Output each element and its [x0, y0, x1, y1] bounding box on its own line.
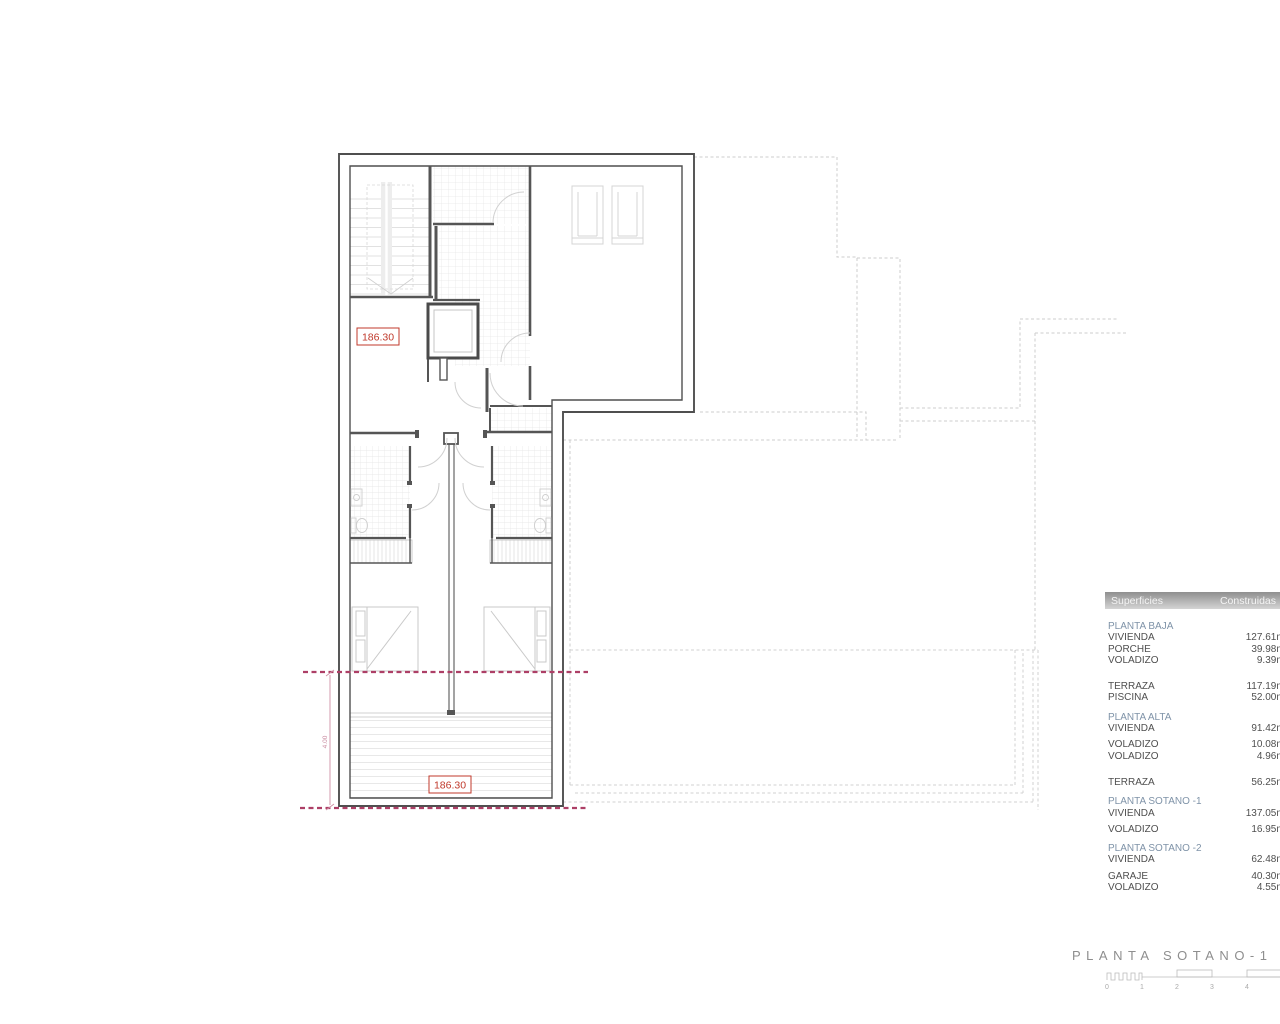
row-label: VIVIENDA	[1105, 632, 1155, 643]
row-label: VOLADIZO	[1105, 655, 1159, 666]
scale-tick-3: 3	[1210, 984, 1214, 991]
table-row	[1105, 666, 1280, 681]
table-row: VOLADIZO 9.39m²	[1105, 655, 1280, 666]
row-value: 16.95m²	[1251, 824, 1280, 835]
table-row: VOLADIZO 16.95m²	[1105, 824, 1280, 835]
row-value: 117.19m²	[1246, 681, 1280, 692]
table-row: VOLADIZO 10.08m²	[1105, 739, 1280, 750]
row-label: VIVIENDA	[1105, 723, 1155, 734]
row-label: VIVIENDA	[1105, 808, 1155, 819]
table-row: VOLADIZO 4.55m²	[1105, 882, 1280, 893]
row-label: VOLADIZO	[1105, 739, 1159, 750]
surfaces-table: Superficies Construidas PLANTA BAJA VIVI…	[1105, 592, 1280, 893]
row-value: 62.48m²	[1251, 854, 1280, 865]
scale-tick-1: 1	[1140, 984, 1144, 991]
row-label: TERRAZA	[1105, 777, 1155, 788]
table-row: PLANTA SOTANO -2	[1105, 843, 1280, 854]
elevator	[428, 304, 478, 380]
projection-outlines	[563, 157, 1128, 650]
loungers	[572, 186, 643, 244]
wardrobes	[350, 540, 552, 563]
dimension-label: 4.00	[322, 735, 329, 748]
row-value: 4.55m²	[1257, 882, 1280, 893]
row-value: 4.96m²	[1257, 751, 1280, 762]
surfaces-table-rows: PLANTA BAJA VIVIENDA 127.61m² PORCHE 39.…	[1105, 609, 1280, 893]
row-label: TERRAZA	[1105, 681, 1155, 692]
table-row: VIVIENDA 91.42m²	[1105, 723, 1280, 734]
row-value: 56.25m²	[1251, 777, 1280, 788]
floor-plan-drawing: 4.00 186.30 186.30 0 1 2 3 4 5	[0, 0, 1280, 1024]
row-label	[1105, 666, 1108, 681]
table-row: TERRAZA 56.25m²	[1105, 777, 1280, 788]
table-row: VOLADIZO 4.96m²	[1105, 751, 1280, 762]
row-label: PLANTA SOTANO -1	[1105, 796, 1202, 807]
scale-bar: 0 1 2 3 4 5	[1105, 970, 1280, 991]
row-value: 137.05m²	[1246, 808, 1280, 819]
row-value: 40.30m²	[1251, 871, 1280, 882]
area-label-top-text: 186.30	[362, 332, 394, 344]
area-label-bottom: 186.30	[429, 776, 471, 793]
table-row: TERRAZA 117.19m²	[1105, 681, 1280, 692]
table-row: PLANTA BAJA	[1105, 621, 1280, 632]
beds	[352, 607, 550, 671]
terrace-projection-outline	[563, 650, 1038, 810]
table-row: VIVIENDA 137.05m²	[1105, 808, 1280, 819]
sheet-title: PLANTA SOTANO-1	[1072, 948, 1273, 963]
row-label: PLANTA SOTANO -2	[1105, 843, 1202, 854]
row-label: VIVIENDA	[1105, 854, 1155, 865]
scale-tick-0: 0	[1105, 984, 1109, 991]
table-row: PISCINA 52.00m²	[1105, 692, 1280, 703]
row-label	[1105, 762, 1108, 777]
surfaces-table-header: Superficies Construidas	[1105, 592, 1280, 609]
area-label-top: 186.30	[357, 328, 399, 345]
table-row: PORCHE 39.98m²	[1105, 644, 1280, 655]
row-label: PLANTA BAJA	[1105, 621, 1173, 632]
scale-bar-zigzag	[1107, 973, 1142, 980]
row-label: GARAJE	[1105, 871, 1148, 882]
surfaces-header-left: Superficies	[1111, 595, 1163, 607]
row-label: VOLADIZO	[1105, 751, 1159, 762]
row-label: PLANTA ALTA	[1105, 712, 1171, 723]
row-label: VOLADIZO	[1105, 882, 1159, 893]
staircase	[350, 182, 430, 297]
row-value: 39.98m²	[1251, 644, 1280, 655]
table-row	[1105, 762, 1280, 777]
row-value: 9.39m²	[1257, 655, 1280, 666]
row-label: VOLADIZO	[1105, 824, 1159, 835]
table-row: PLANTA SOTANO -1	[1105, 796, 1280, 807]
row-value: 91.42m²	[1251, 723, 1280, 734]
sheet: 4.00 186.30 186.30 0 1 2 3 4 5 Superfici…	[0, 0, 1280, 1024]
surfaces-header-right: Construidas	[1220, 595, 1276, 607]
row-label: PISCINA	[1105, 692, 1148, 703]
scale-tick-4: 4	[1245, 984, 1249, 991]
area-label-bottom-text: 186.30	[434, 780, 466, 792]
table-row: PLANTA ALTA	[1105, 712, 1280, 723]
scale-tick-2: 2	[1175, 984, 1179, 991]
row-value: 127.61m²	[1246, 632, 1280, 643]
table-row: GARAJE 40.30m²	[1105, 871, 1280, 882]
table-row: VIVIENDA 62.48m²	[1105, 854, 1280, 865]
row-value: 52.00m²	[1251, 692, 1280, 703]
vertical-dimension: 4.00	[322, 670, 334, 810]
row-label: PORCHE	[1105, 644, 1151, 655]
table-row: VIVIENDA 127.61m²	[1105, 632, 1280, 643]
row-value: 10.08m²	[1251, 739, 1280, 750]
